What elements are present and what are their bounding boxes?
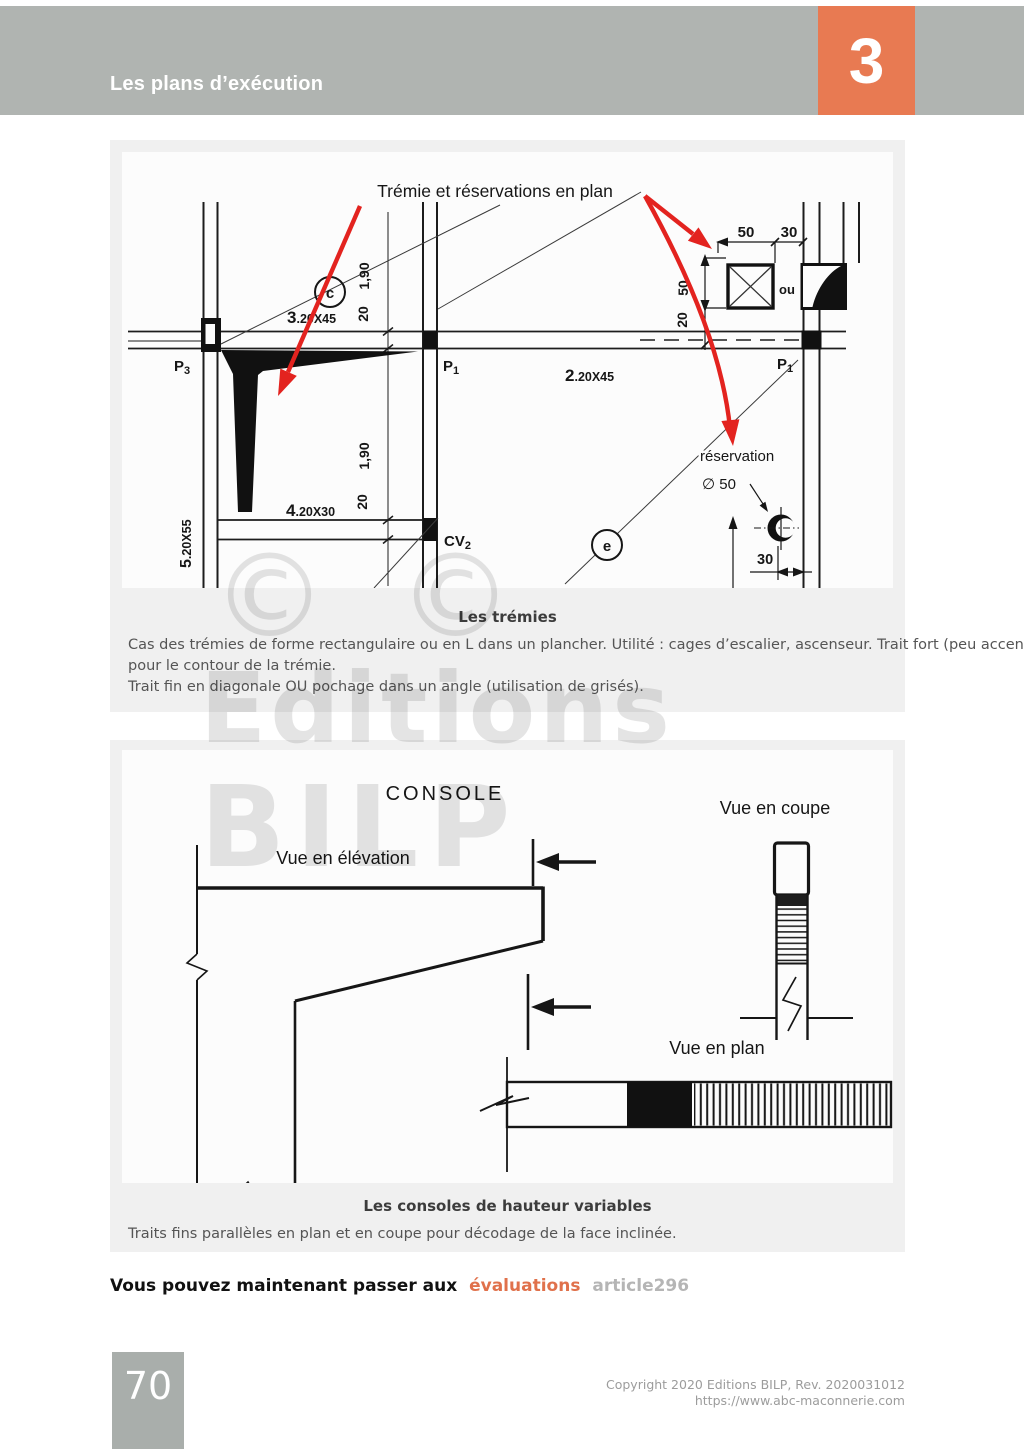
chapter-number-box: 3 <box>818 6 915 115</box>
elevation-view-label: Vue en élévation <box>276 848 409 868</box>
cta-article-ref: article296 <box>592 1276 689 1296</box>
copyright-line: Copyright 2020 Editions BILP, Rev. 20200… <box>606 1377 905 1393</box>
evaluations-link[interactable]: évaluations <box>469 1276 580 1296</box>
svg-text:e: e <box>603 538 611 555</box>
section-view-label: Vue en coupe <box>720 798 830 818</box>
figure1-caption: Les trémies Cas des trémies de forme rec… <box>110 588 905 712</box>
figure1-caption-title: Les trémies <box>110 608 905 626</box>
figure2-caption: Les consoles de hauteur variables Traits… <box>110 1183 905 1252</box>
svg-text:1,90: 1,90 <box>356 262 372 289</box>
footer-copyright: Copyright 2020 Editions BILP, Rev. 20200… <box>606 1377 905 1409</box>
reservation-diameter: ∅ 50 <box>702 476 736 493</box>
svg-text:30: 30 <box>781 224 798 241</box>
reservation-label: réservation <box>700 448 774 465</box>
chapter-number: 3 <box>849 24 885 98</box>
site-url: https://www.abc-maconnerie.com <box>606 1393 905 1409</box>
evaluations-cta: Vous pouvez maintenant passer aux évalua… <box>110 1276 689 1296</box>
figure1-caption-line: Trait fin en diagonale OU pochage dans u… <box>128 677 887 698</box>
reference-bubble-e: e <box>592 530 622 560</box>
figure1-caption-line: Cas des trémies de forme rectangulaire o… <box>128 635 887 656</box>
svg-text:5.20X55: 5.20X55 <box>178 519 195 568</box>
page-title: Les plans d’exécution <box>110 73 323 96</box>
figure1-caption-line: pour le contour de la trémie. <box>128 656 887 677</box>
svg-text:50: 50 <box>738 224 755 241</box>
figure-panel-consoles: CONSOLE Vue en coupe Vue en élévation Vu… <box>110 740 905 1252</box>
figure1-title: Trémie et réservations en plan <box>377 181 613 201</box>
page-number-box: 70 <box>112 1352 184 1449</box>
console-drawing: CONSOLE Vue en coupe Vue en élévation Vu… <box>110 740 905 1183</box>
svg-text:20: 20 <box>354 494 370 510</box>
figure-panel-tremies: c e ou 50 30 50 20 <box>110 140 905 712</box>
svg-text:1,90: 1,90 <box>356 442 372 469</box>
svg-text:20: 20 <box>674 312 690 328</box>
svg-text:c: c <box>326 285 334 302</box>
svg-text:30: 30 <box>757 552 773 568</box>
figure2-caption-title: Les consoles de hauteur variables <box>110 1197 905 1215</box>
svg-text:20: 20 <box>355 306 371 322</box>
plan-view-label: Vue en plan <box>669 1038 764 1058</box>
figure2-title: CONSOLE <box>386 783 505 805</box>
ou-label: ou <box>779 282 795 297</box>
tremie-plan-drawing: c e ou 50 30 50 20 <box>110 140 905 588</box>
cta-text: Vous pouvez maintenant passer aux <box>110 1276 457 1296</box>
figure2-caption-line: Traits fins parallèles en plan et en cou… <box>128 1224 887 1245</box>
page-number: 70 <box>124 1364 172 1408</box>
